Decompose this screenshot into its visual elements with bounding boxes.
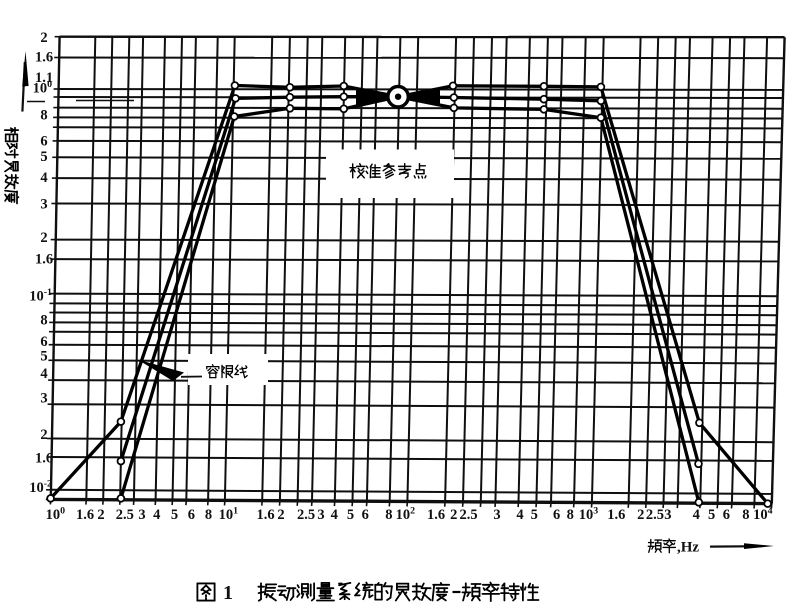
svg-text:6: 6 — [553, 507, 560, 523]
svg-text:4: 4 — [40, 170, 47, 186]
svg-text:4: 4 — [693, 507, 700, 523]
svg-text:5: 5 — [708, 507, 715, 523]
svg-text:3: 3 — [317, 507, 324, 523]
svg-text:3: 3 — [138, 507, 145, 523]
svg-text:8: 8 — [385, 507, 392, 523]
svg-text:1.6: 1.6 — [35, 50, 53, 66]
svg-text:5: 5 — [171, 507, 178, 523]
svg-text:1.6: 1.6 — [35, 252, 53, 268]
svg-text:8: 8 — [40, 108, 47, 124]
svg-text:8: 8 — [567, 507, 574, 523]
svg-text:2: 2 — [637, 507, 644, 523]
svg-text:3: 3 — [40, 391, 47, 407]
svg-text:2: 2 — [450, 507, 457, 523]
svg-text:,Hz: ,Hz — [677, 540, 699, 556]
svg-text:4: 4 — [153, 507, 160, 523]
svg-text:8: 8 — [40, 312, 47, 328]
svg-text:1.6: 1.6 — [76, 507, 94, 523]
svg-text:2: 2 — [277, 507, 284, 523]
svg-text:2.5: 2.5 — [460, 507, 478, 523]
svg-text:6: 6 — [362, 507, 369, 523]
svg-text:4: 4 — [331, 507, 338, 523]
svg-text:3: 3 — [40, 197, 47, 213]
svg-text:5: 5 — [347, 507, 354, 523]
svg-text:2.5: 2.5 — [646, 507, 664, 523]
svg-text:4: 4 — [516, 507, 523, 523]
svg-text:6: 6 — [723, 507, 730, 523]
svg-text:5: 5 — [40, 349, 47, 365]
svg-text:2.5: 2.5 — [297, 507, 315, 523]
svg-text:3: 3 — [493, 507, 500, 523]
svg-text:6: 6 — [188, 507, 195, 523]
svg-text:1.6: 1.6 — [256, 507, 274, 523]
svg-text:5: 5 — [531, 507, 538, 523]
svg-text:8: 8 — [205, 507, 212, 523]
svg-text:1.6: 1.6 — [35, 451, 53, 467]
svg-text:6: 6 — [40, 134, 47, 150]
svg-text:2: 2 — [40, 427, 47, 443]
svg-text:2: 2 — [40, 30, 47, 46]
svg-text:8: 8 — [742, 507, 749, 523]
svg-text:1.6: 1.6 — [427, 507, 445, 523]
svg-text:3: 3 — [664, 507, 671, 523]
svg-text:4: 4 — [40, 366, 47, 382]
svg-text:2: 2 — [97, 507, 104, 523]
svg-text:1.6: 1.6 — [607, 507, 625, 523]
svg-text:5: 5 — [40, 149, 47, 165]
svg-text:1: 1 — [223, 582, 233, 604]
svg-text:2: 2 — [40, 230, 47, 246]
svg-text:2.5: 2.5 — [116, 507, 134, 523]
